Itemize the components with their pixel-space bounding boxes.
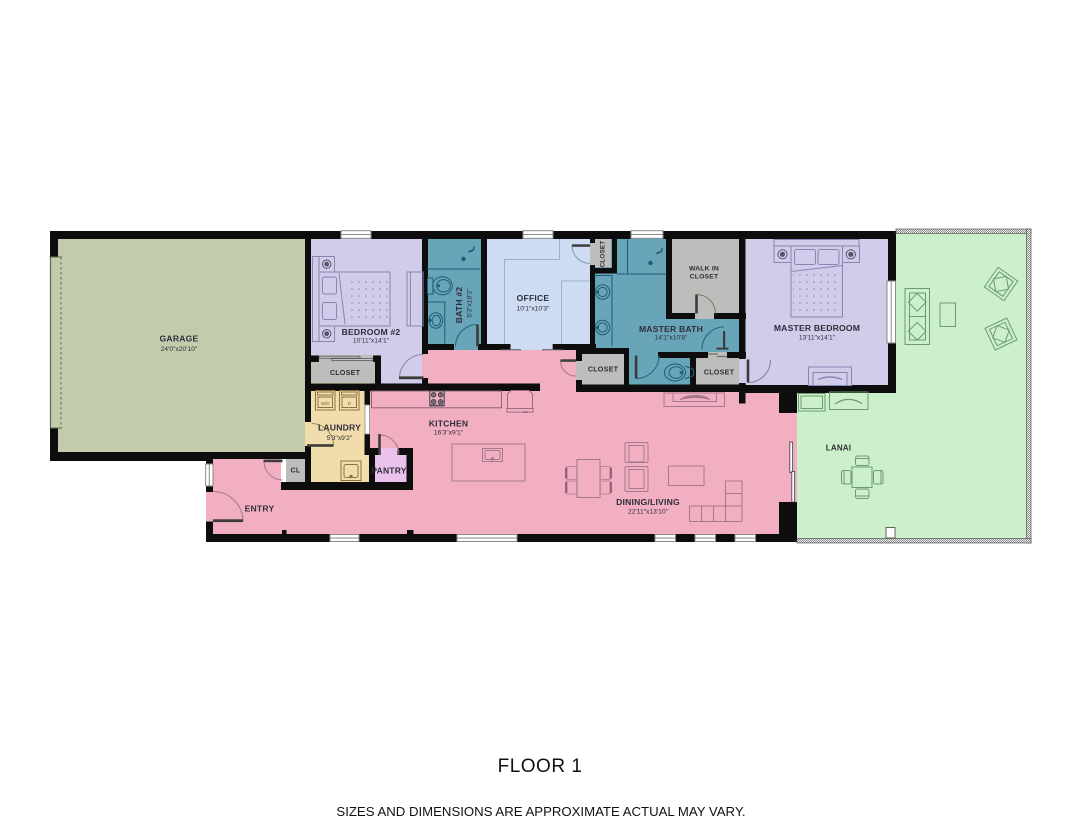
- svg-text:SIZES AND DIMENSIONS ARE APPRO: SIZES AND DIMENSIONS ARE APPROXIMATE ACT…: [336, 804, 745, 819]
- svg-text:CL: CL: [291, 466, 301, 475]
- svg-text:LAUNDRY: LAUNDRY: [318, 423, 361, 433]
- svg-text:W/D: W/D: [321, 401, 329, 406]
- svg-text:CLOSET: CLOSET: [588, 365, 619, 374]
- svg-text:24'0"x20'10": 24'0"x20'10": [161, 346, 198, 353]
- svg-text:CLOSET: CLOSET: [690, 274, 719, 281]
- svg-text:MASTER BEDROOM: MASTER BEDROOM: [774, 323, 860, 333]
- svg-text:MASTER BATH: MASTER BATH: [639, 324, 703, 334]
- svg-text:22'11"x13'10": 22'11"x13'10": [628, 508, 669, 515]
- svg-text:KITCHEN: KITCHEN: [429, 419, 469, 429]
- svg-text:DINING/LIVING: DINING/LIVING: [616, 497, 680, 507]
- svg-text:OFFICE: OFFICE: [517, 293, 550, 303]
- svg-text:CLOSET: CLOSET: [600, 241, 607, 268]
- svg-text:WALK IN: WALK IN: [689, 266, 719, 273]
- svg-text:CLOSET: CLOSET: [704, 368, 735, 377]
- svg-text:13'11"x14'1": 13'11"x14'1": [799, 335, 836, 342]
- svg-text:10'11"x14'1": 10'11"x14'1": [353, 337, 390, 344]
- svg-text:D: D: [348, 401, 351, 406]
- svg-text:5'3"x10'3": 5'3"x10'3": [467, 288, 474, 318]
- svg-text:10'1"x10'3": 10'1"x10'3": [517, 306, 551, 313]
- svg-text:PANTRY: PANTRY: [371, 466, 406, 476]
- svg-text:BEDROOM #2: BEDROOM #2: [342, 327, 401, 337]
- svg-text:5'3"x9'2": 5'3"x9'2": [327, 435, 353, 442]
- svg-text:CLOSET: CLOSET: [330, 368, 361, 377]
- svg-text:14'1"x10'8": 14'1"x10'8": [655, 335, 689, 342]
- svg-text:16'3"x9'1": 16'3"x9'1": [434, 430, 464, 437]
- svg-text:FLOOR 1: FLOOR 1: [498, 756, 583, 777]
- svg-text:GARAGE: GARAGE: [160, 334, 199, 344]
- svg-text:LANAI: LANAI: [826, 444, 851, 453]
- svg-text:ENTRY: ENTRY: [245, 504, 275, 514]
- svg-text:BATH #2: BATH #2: [454, 287, 464, 324]
